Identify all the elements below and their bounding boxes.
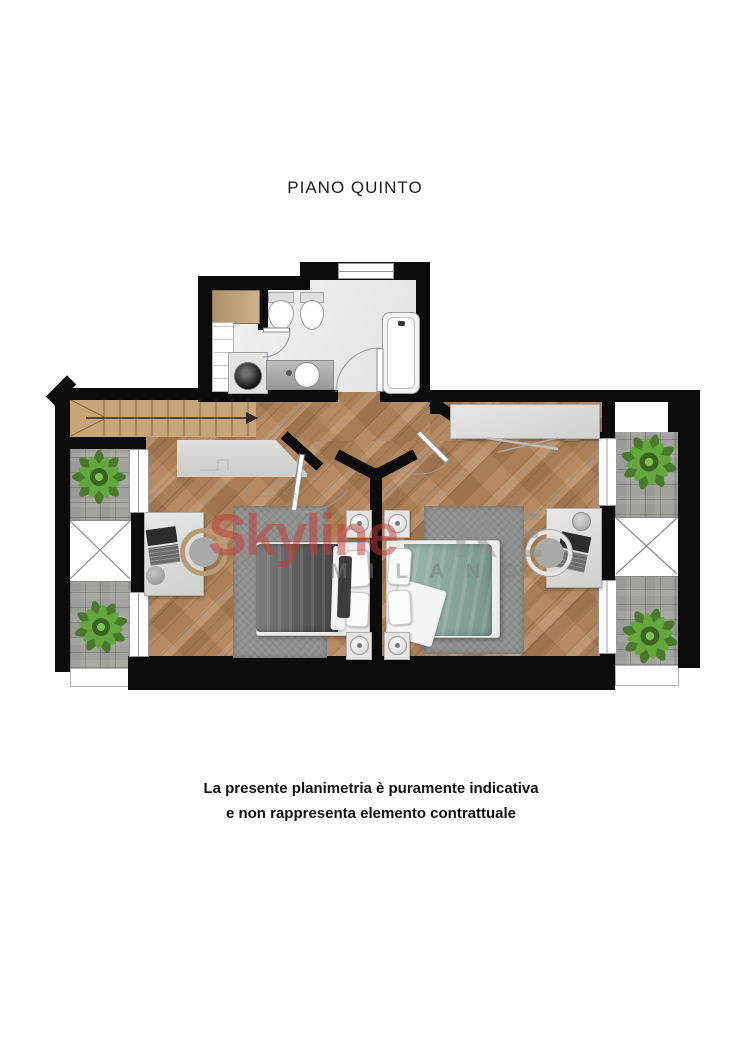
disclaimer-line-1: La presente planimetria è puramente indi… bbox=[0, 776, 742, 801]
shaft-x bbox=[70, 518, 677, 579]
plant bbox=[64, 590, 138, 664]
plan-linework bbox=[0, 0, 742, 1050]
disclaimer: La presente planimetria è puramente indi… bbox=[0, 776, 742, 826]
disclaimer-line-2: e non rappresenta elemento contrattuale bbox=[0, 801, 742, 826]
plant bbox=[72, 450, 126, 504]
floor-plan-page: PIANO QUINTO bbox=[0, 0, 742, 1050]
plant bbox=[615, 601, 684, 670]
plant bbox=[610, 423, 687, 500]
decor-sketch bbox=[200, 460, 438, 502]
door-swings bbox=[263, 330, 558, 512]
